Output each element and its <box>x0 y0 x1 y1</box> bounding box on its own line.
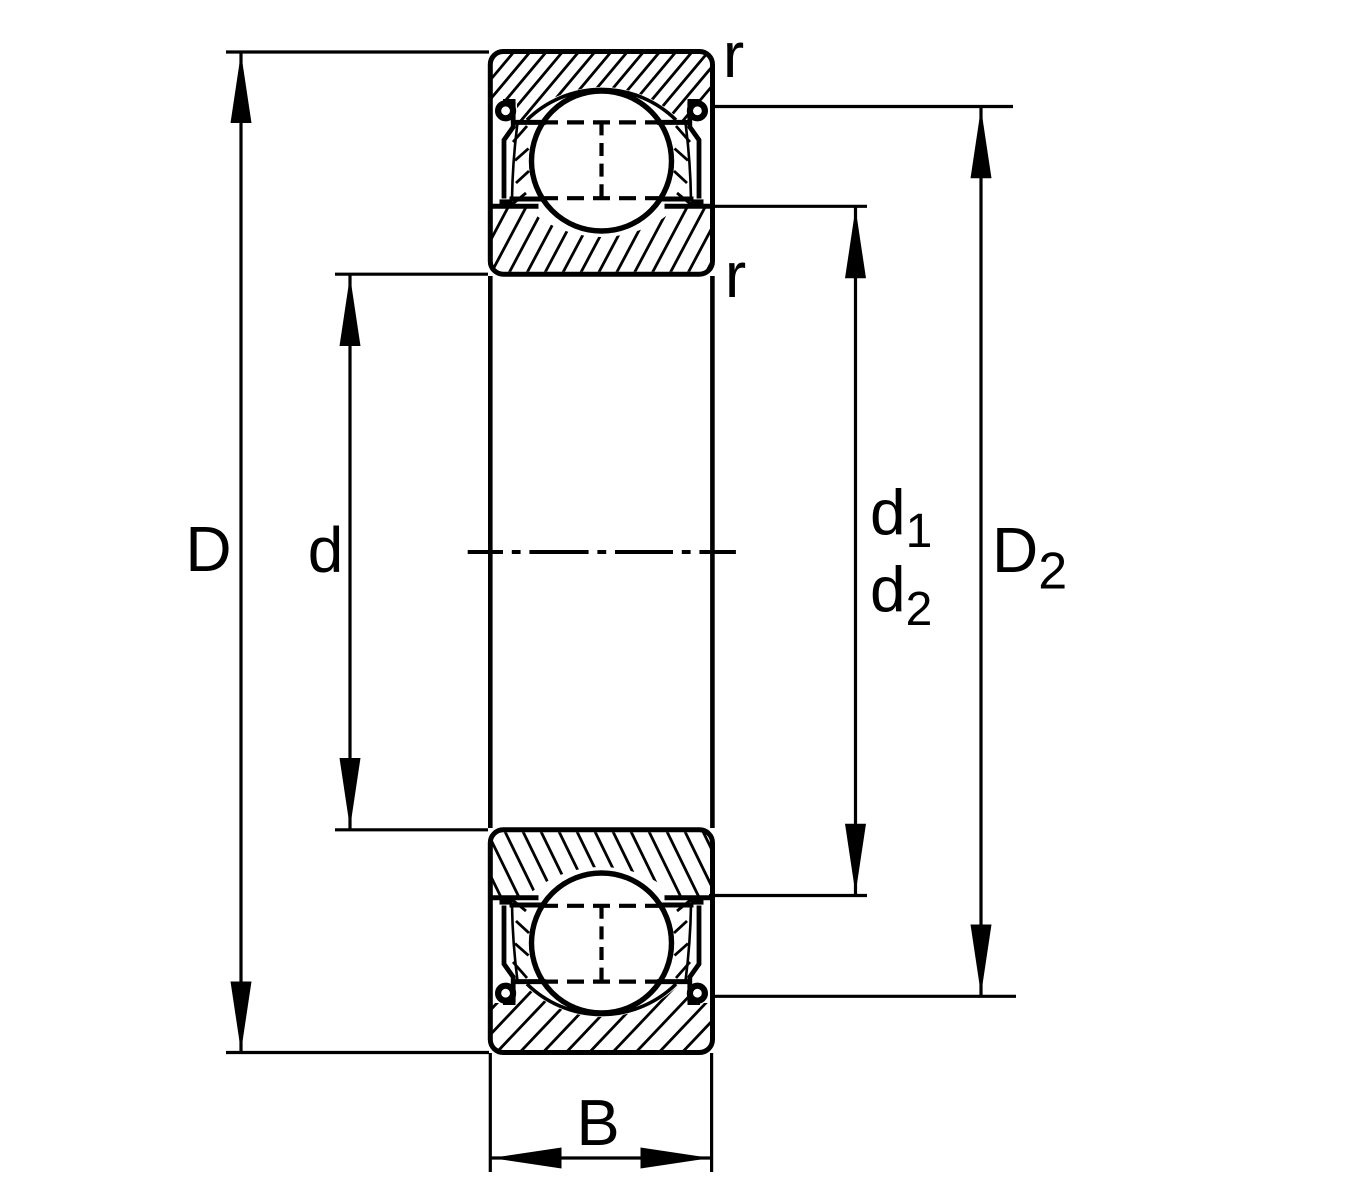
svg-text:D: D <box>185 513 231 585</box>
svg-text:D2: D2 <box>992 514 1067 600</box>
svg-text:r: r <box>723 19 744 91</box>
svg-text:d: d <box>308 514 344 586</box>
svg-text:d1: d1 <box>870 477 932 559</box>
svg-text:r: r <box>725 239 746 311</box>
svg-text:d2: d2 <box>870 554 932 636</box>
svg-text:B: B <box>576 1086 619 1159</box>
